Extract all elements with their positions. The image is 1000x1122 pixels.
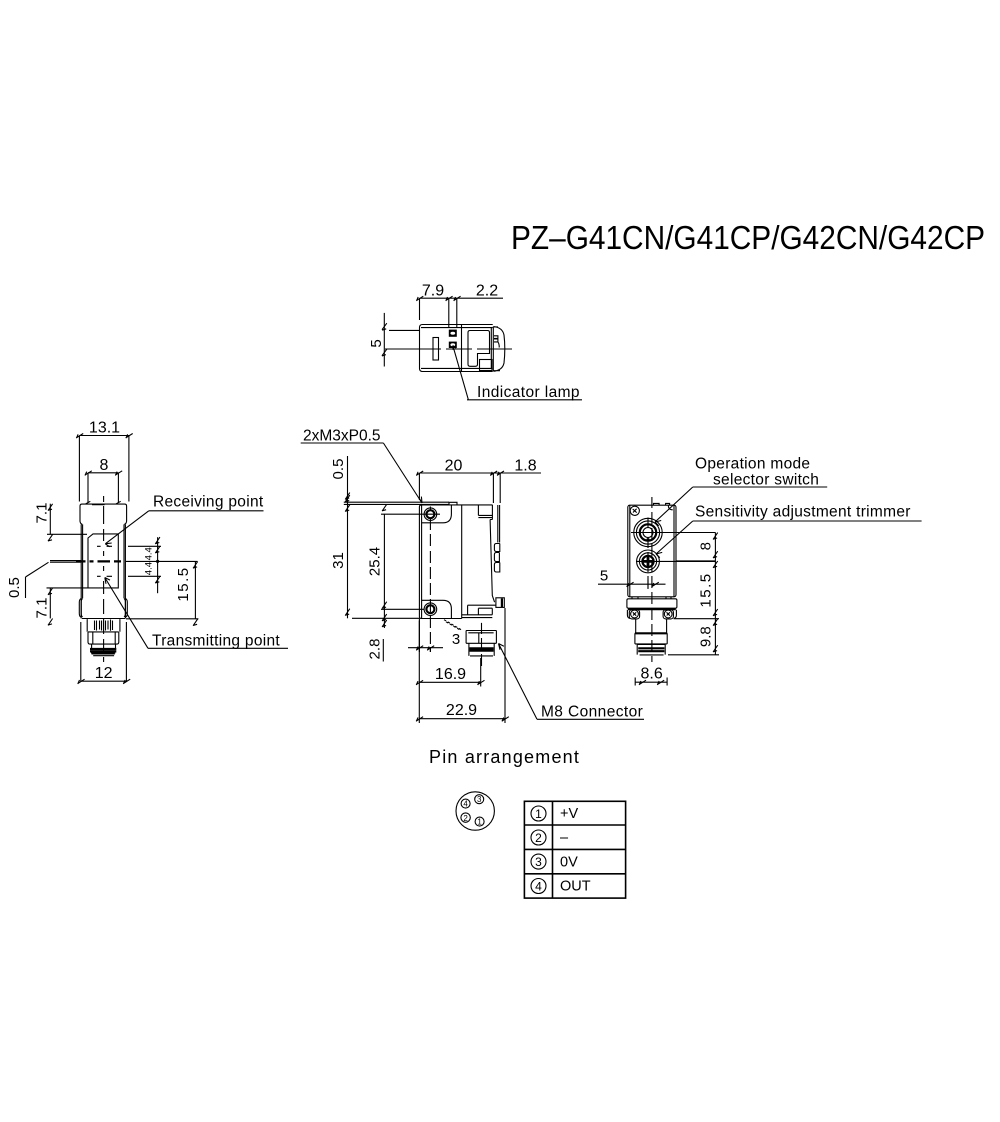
svg-text:8: 8	[698, 542, 715, 550]
svg-text:7.9: 7.9	[422, 283, 444, 300]
svg-text:2xM3xP0.5: 2xM3xP0.5	[303, 428, 381, 445]
svg-text:Sensitivity adjustment trimmer: Sensitivity adjustment trimmer	[695, 503, 911, 520]
svg-text:4.4: 4.4	[144, 547, 155, 560]
svg-text:3: 3	[477, 795, 482, 804]
svg-text:2.2: 2.2	[476, 283, 498, 300]
svg-text:7.1: 7.1	[34, 598, 51, 619]
svg-text:5: 5	[600, 568, 608, 585]
svg-text:3: 3	[452, 631, 460, 648]
svg-text:25.4: 25.4	[367, 547, 384, 576]
svg-text:–: –	[560, 830, 569, 846]
svg-text:selector switch: selector switch	[713, 471, 819, 488]
svg-text:Receiving point: Receiving point	[153, 494, 264, 511]
svg-text:7.1: 7.1	[34, 503, 51, 524]
svg-text:8.6: 8.6	[640, 666, 662, 683]
svg-text:3: 3	[535, 855, 542, 869]
svg-text:PZ–G41CN/G41CP/G42CN/G42CP: PZ–G41CN/G41CP/G42CN/G42CP	[511, 219, 985, 256]
svg-text:Pin arrangement: Pin arrangement	[429, 747, 580, 767]
svg-text:Operation mode: Operation mode	[695, 455, 810, 472]
svg-text:M8 Connector: M8 Connector	[541, 704, 643, 721]
svg-text:0.5: 0.5	[330, 459, 347, 480]
svg-text:1: 1	[477, 818, 482, 827]
svg-text:8: 8	[100, 457, 109, 474]
svg-text:0V: 0V	[560, 854, 578, 870]
svg-text:4: 4	[463, 800, 468, 809]
svg-text:20: 20	[445, 457, 463, 474]
svg-text:15.5: 15.5	[175, 566, 192, 601]
svg-text:9.8: 9.8	[698, 626, 715, 647]
svg-text:4: 4	[535, 879, 542, 893]
svg-text:15.5: 15.5	[698, 572, 715, 607]
svg-text:2: 2	[463, 814, 468, 823]
svg-text:4.4: 4.4	[144, 562, 155, 575]
svg-text:0.5: 0.5	[6, 577, 23, 598]
svg-text:+V: +V	[560, 806, 578, 822]
svg-text:1: 1	[535, 807, 542, 821]
svg-text:2.8: 2.8	[367, 639, 384, 660]
svg-text:5: 5	[368, 339, 385, 347]
svg-text:Transmitting point: Transmitting point	[152, 633, 280, 650]
svg-text:12: 12	[95, 665, 113, 682]
svg-text:OUT: OUT	[560, 879, 591, 895]
svg-text:Indicator lamp: Indicator lamp	[477, 384, 580, 401]
svg-text:31: 31	[330, 552, 347, 569]
svg-text:1.8: 1.8	[514, 457, 536, 474]
svg-text:13.1: 13.1	[89, 420, 120, 437]
svg-text:2: 2	[535, 831, 542, 845]
svg-text:16.9: 16.9	[435, 666, 466, 683]
svg-text:22.9: 22.9	[446, 702, 477, 719]
